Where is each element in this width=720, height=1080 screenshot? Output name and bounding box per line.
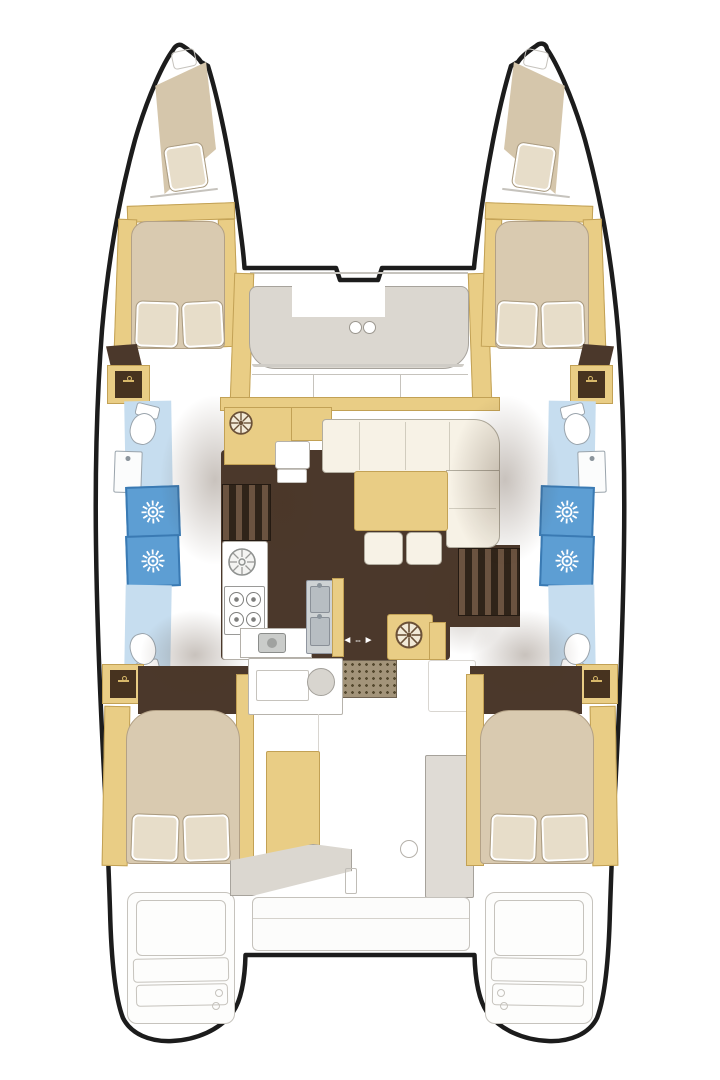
forward-bed-pillow (540, 300, 586, 349)
shower-tray (539, 534, 595, 588)
transom-drain (500, 1002, 508, 1010)
aft-wardrobe (576, 664, 618, 704)
clothes-hanger-icon (584, 670, 610, 698)
shower-head-icon (554, 548, 581, 575)
hull-shading (470, 610, 580, 700)
transom-locker (494, 900, 584, 956)
transom-drain (497, 989, 505, 997)
clothes-hanger-icon (578, 371, 605, 398)
aft-bed-pillow (540, 813, 590, 863)
forward-wardrobe (570, 365, 613, 404)
anchor-locker (522, 48, 549, 71)
transom-step (491, 957, 587, 983)
hull-shading (450, 395, 560, 565)
forward-bed-pillow (495, 300, 539, 349)
aft-bed-pillow (489, 813, 538, 863)
forepeak-pillow (511, 141, 558, 193)
catamaran-floorplan: ◄ -- ► (0, 0, 720, 1080)
starboard-hull (0, 0, 720, 1080)
